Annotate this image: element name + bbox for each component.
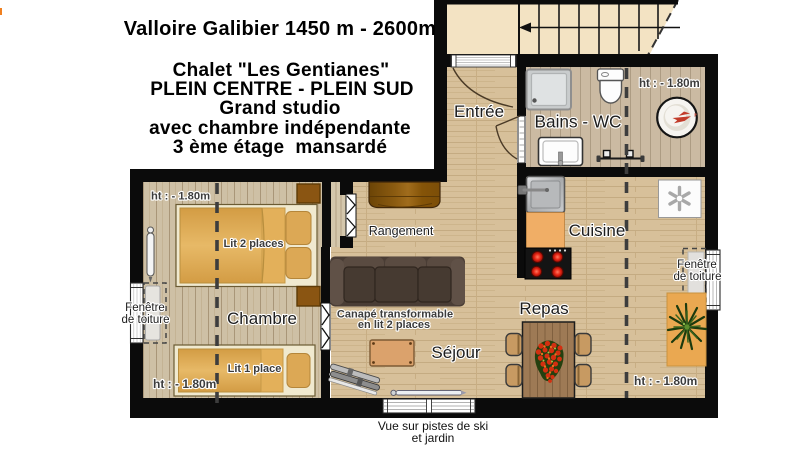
svg-text:Lit 2 places: Lit 2 places bbox=[224, 238, 284, 250]
svg-text:3 ème étage mansardé: 3 ème étage mansardé bbox=[173, 137, 387, 158]
svg-text:Chambre: Chambre bbox=[227, 309, 297, 328]
svg-text:Entrée: Entrée bbox=[454, 102, 504, 121]
svg-text:et jardin: et jardin bbox=[412, 431, 455, 445]
svg-text:ht : - 1.80m: ht : - 1.80m bbox=[634, 374, 697, 388]
svg-text:Séjour: Séjour bbox=[431, 343, 480, 362]
svg-text:Valloire Galibier 1450 m - 260: Valloire Galibier 1450 m - 2600m bbox=[124, 18, 437, 40]
svg-text:Bains - WC: Bains - WC bbox=[535, 112, 622, 132]
svg-text:Rangement: Rangement bbox=[369, 224, 434, 238]
svg-text:Fenêtre: Fenêtre bbox=[125, 302, 165, 314]
svg-text:Lit 1 place: Lit 1 place bbox=[228, 363, 282, 375]
svg-text:Fenêtre: Fenêtre bbox=[677, 259, 717, 271]
svg-text:de toiture: de toiture bbox=[122, 314, 170, 326]
svg-text:PLEIN CENTRE - PLEIN SUD: PLEIN CENTRE - PLEIN SUD bbox=[150, 79, 414, 100]
svg-text:en lit 2 places: en lit 2 places bbox=[358, 319, 430, 331]
svg-text:avec chambre indépendante: avec chambre indépendante bbox=[149, 118, 411, 139]
svg-text:ht : - 1.80m: ht : - 1.80m bbox=[153, 377, 216, 391]
svg-text:Grand studio: Grand studio bbox=[219, 98, 340, 119]
svg-text:Cuisine: Cuisine bbox=[569, 221, 626, 240]
svg-text:Chalet "Les Gentianes": Chalet "Les Gentianes" bbox=[173, 60, 390, 81]
svg-text:ht : - 1.80m: ht : - 1.80m bbox=[151, 191, 210, 203]
svg-text:ht : - 1.80m: ht : - 1.80m bbox=[639, 78, 700, 90]
svg-text:Repas: Repas bbox=[519, 299, 568, 318]
svg-text:de toiture: de toiture bbox=[674, 271, 722, 283]
